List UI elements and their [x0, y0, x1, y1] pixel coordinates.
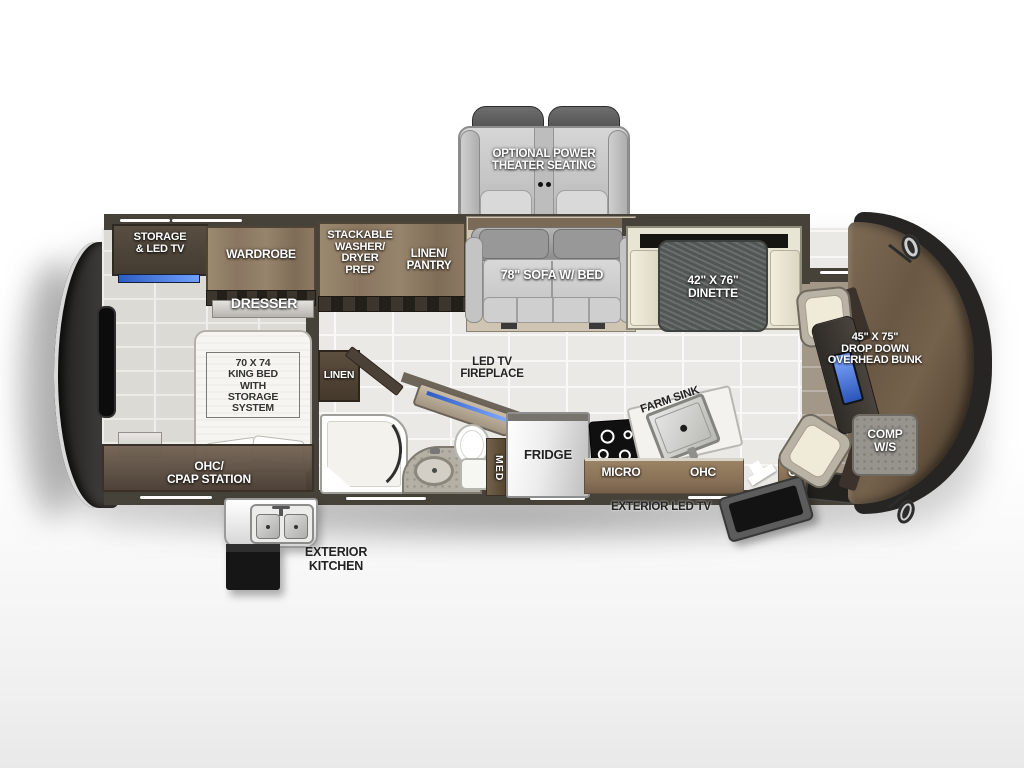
- fireplace-label: LED TV FIREPLACE: [446, 356, 538, 381]
- dinette-bench-right: [770, 250, 800, 326]
- comp-ws-label: COMP W/S: [852, 428, 918, 453]
- washer-prep-label: STACKABLE WASHER/ DRYER PREP: [320, 230, 400, 277]
- washer-linen-base: [318, 296, 466, 312]
- linen-label: LINEN: [316, 370, 362, 381]
- exterior-kitchen-box-top: [226, 544, 280, 552]
- rv-floorplan: OPTIONAL POWER THEATER SEATING STORAGE &…: [0, 0, 1024, 768]
- dresser-label: DRESSER: [214, 296, 314, 311]
- exterior-faucet-icon: [272, 506, 290, 509]
- exterior-sink-drain: [294, 525, 298, 529]
- theater-arm-right: [608, 130, 628, 222]
- burner-icon: [600, 429, 615, 444]
- micro-label: MICRO: [590, 466, 652, 479]
- toilet-seat: [460, 430, 484, 460]
- theater-seating-label: OPTIONAL POWER THEATER SEATING: [462, 148, 626, 172]
- linen-pantry-label: LINEN/ PANTRY: [394, 248, 464, 272]
- slide-seam: [140, 496, 212, 499]
- sofa-back-cushion: [553, 229, 623, 259]
- sofa-front-cushions: [483, 297, 621, 323]
- dinette-slide: 42" X 76" DINETTE: [626, 226, 802, 330]
- rear-window-icon: [97, 306, 116, 418]
- theater-seating: OPTIONAL POWER THEATER SEATING: [458, 104, 630, 226]
- theater-arm-left: [460, 130, 480, 222]
- cupholder-icon: [546, 182, 551, 187]
- dinette-bench-left: [630, 250, 660, 326]
- med-label: MED: [488, 442, 504, 494]
- bedroom-tv-icon: [118, 274, 200, 283]
- ohc-kitchen-label: OHC: [678, 466, 728, 479]
- king-bed-label: 70 X 74 KING BED WITH STORAGE SYSTEM: [207, 358, 299, 415]
- sofa-back-cushion: [479, 229, 549, 259]
- wardrobe-label: WARDROBE: [208, 248, 314, 261]
- theater-console: [534, 128, 554, 224]
- exterior-kitchen-label: EXTERIOR KITCHEN: [284, 546, 388, 573]
- sofa-slide: 78" SOFA W/ BED: [466, 216, 636, 332]
- cupholder-icon: [538, 182, 543, 187]
- exterior-tv-label: EXTERIOR LED TV: [606, 501, 716, 513]
- ohc-cpap-label: OHC/ CPAP STATION: [144, 460, 274, 485]
- storage-ledtv-label: STORAGE & LED TV: [114, 232, 206, 255]
- bath-sink-drain: [432, 468, 437, 473]
- exterior-sink-icon: [250, 504, 314, 544]
- dinette-label: 42" X 76" DINETTE: [662, 274, 764, 299]
- bath-faucet-icon: [430, 448, 440, 454]
- sofa-leg: [589, 323, 605, 329]
- exterior-kitchen-box: [226, 544, 280, 590]
- overhead-bunk-label: 45" X 75" DROP DOWN OVERHEAD BUNK: [810, 332, 940, 367]
- sofa-leg: [501, 323, 517, 329]
- exterior-sink-drain: [266, 525, 270, 529]
- fridge-top-trim: [508, 414, 588, 421]
- sofa-label: 78" SOFA W/ BED: [472, 269, 632, 282]
- slide-seam: [346, 497, 426, 500]
- fridge-label: FRIDGE: [508, 448, 588, 462]
